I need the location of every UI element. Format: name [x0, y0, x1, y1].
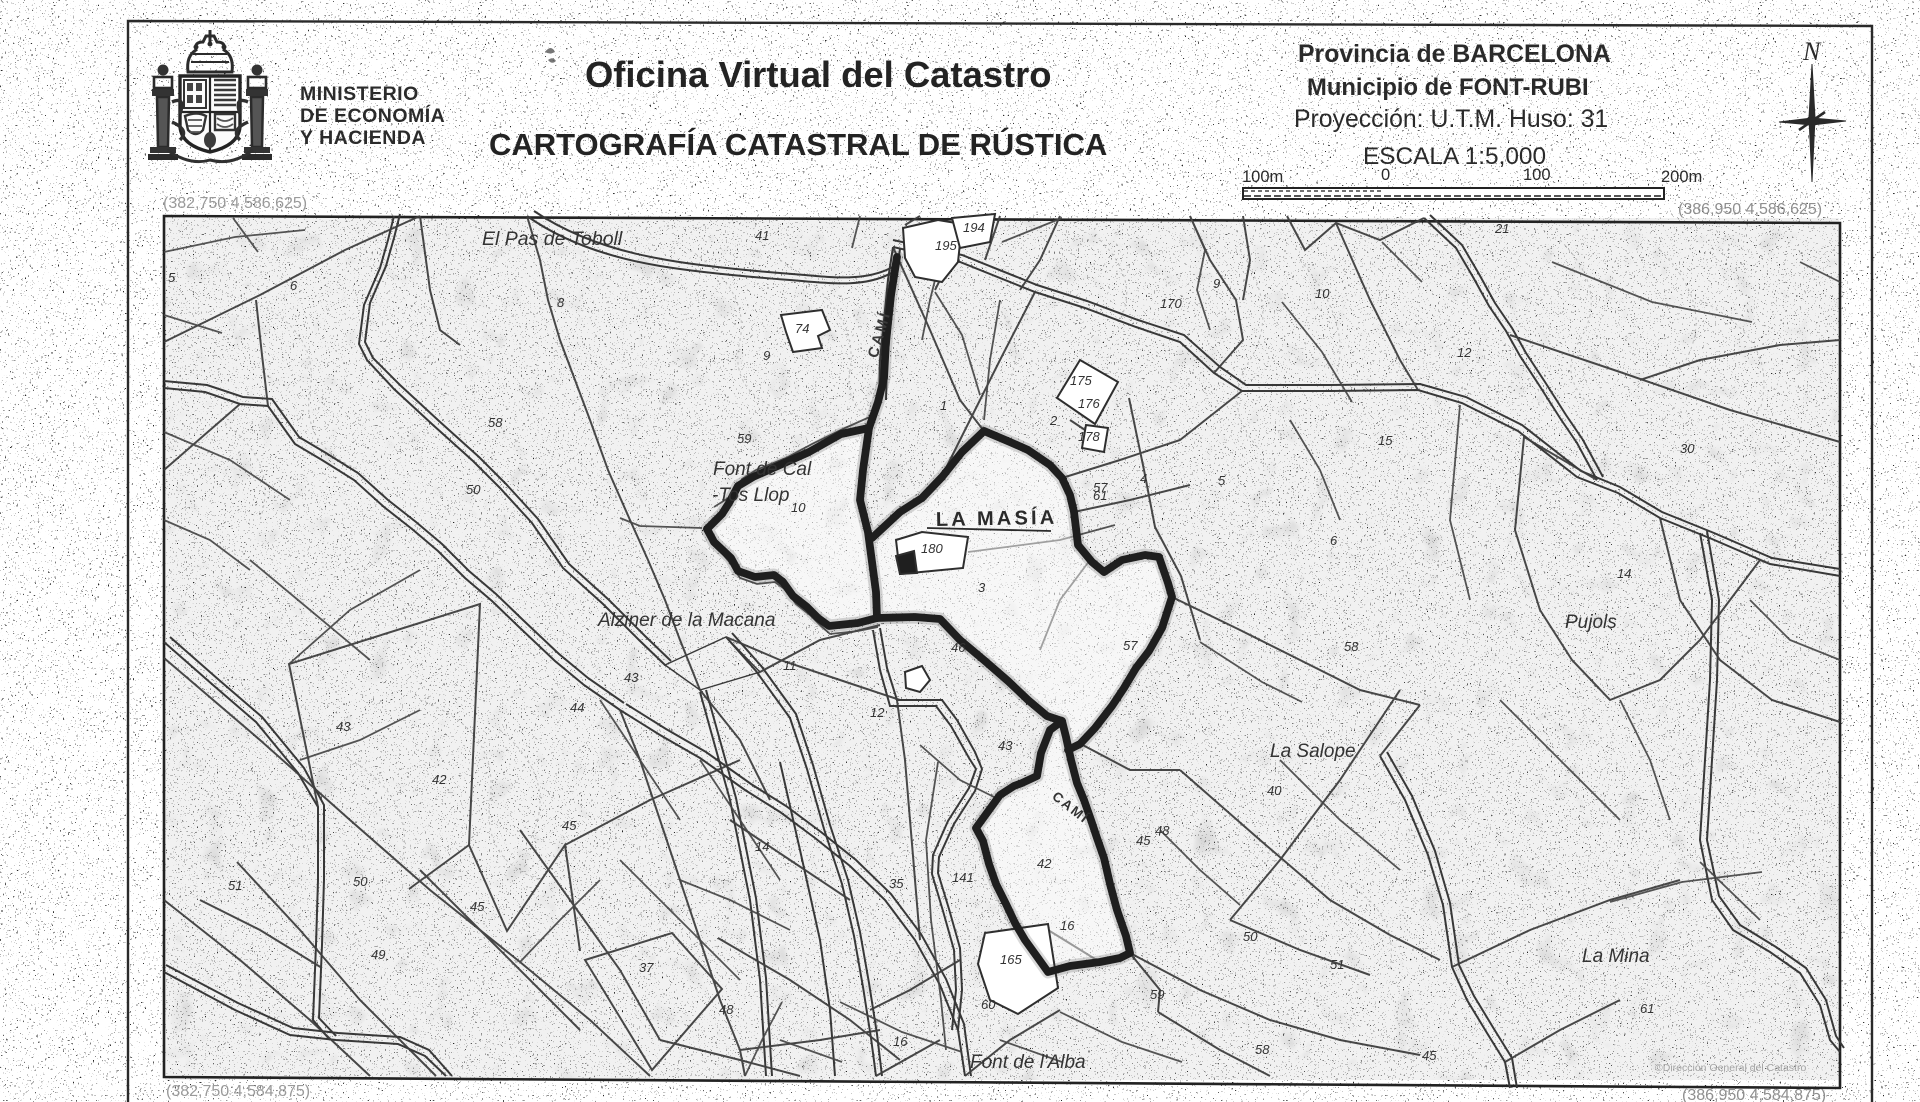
svg-text:5: 5	[1218, 473, 1226, 488]
svg-text:194: 194	[963, 220, 985, 235]
svg-text:21: 21	[1494, 221, 1509, 236]
svg-text:200m: 200m	[1661, 168, 1702, 186]
svg-text:©Dirección General del Catastr: ©Dirección General del Catastro	[1655, 1062, 1806, 1074]
svg-text:141: 141	[952, 870, 974, 885]
svg-text:Font de l'Alba: Font de l'Alba	[970, 1052, 1086, 1073]
svg-text:Municipio de FONT-RUBI: Municipio de FONT-RUBI	[1307, 74, 1589, 101]
svg-text:MINISTERIO: MINISTERIO	[300, 83, 419, 105]
svg-text:58: 58	[1344, 639, 1359, 654]
svg-text:170: 170	[1160, 296, 1182, 311]
svg-text:58: 58	[488, 415, 503, 430]
svg-text:Proyección: U.T.M. Huso: 31: Proyección: U.T.M. Huso: 31	[1294, 106, 1608, 133]
svg-text:4: 4	[1140, 471, 1147, 486]
svg-text:LA MASÍA: LA MASÍA	[936, 506, 1058, 531]
svg-text:N: N	[1802, 37, 1822, 66]
svg-text:11: 11	[783, 658, 797, 673]
svg-text:Font de Cal: Font de Cal	[713, 459, 812, 480]
svg-text:Alziner de la Macana: Alziner de la Macana	[597, 610, 775, 631]
svg-text:9: 9	[763, 348, 770, 363]
svg-text:0: 0	[1381, 166, 1390, 184]
svg-text:50: 50	[466, 482, 481, 497]
svg-text:45: 45	[1422, 1048, 1437, 1063]
svg-text:Provincia de BARCELONA: Provincia de BARCELONA	[1298, 41, 1611, 68]
svg-text:175: 175	[1070, 373, 1092, 388]
svg-text:14: 14	[755, 839, 769, 854]
svg-text:10: 10	[1315, 286, 1330, 301]
svg-text:ESCALA 1:5,000: ESCALA 1:5,000	[1363, 143, 1546, 170]
svg-text:2: 2	[1049, 413, 1058, 428]
svg-text:DE ECONOMÍA: DE ECONOMÍA	[300, 104, 445, 127]
svg-text:180: 180	[921, 541, 943, 556]
svg-text:16: 16	[1060, 918, 1075, 933]
svg-text:57: 57	[1093, 480, 1108, 495]
svg-text:(382,750 4,584,875): (382,750 4,584,875)	[166, 1083, 310, 1100]
svg-text:100: 100	[1523, 166, 1551, 184]
svg-text:74: 74	[795, 321, 809, 336]
svg-text:44: 44	[570, 700, 584, 715]
svg-text:(386,950 4,584,875): (386,950 4,584,875)	[1682, 1087, 1826, 1102]
svg-text:37: 37	[639, 960, 654, 975]
svg-text:15: 15	[1378, 433, 1393, 448]
svg-text:59: 59	[1150, 987, 1164, 1002]
svg-text:12: 12	[870, 705, 885, 720]
svg-text:9: 9	[1213, 276, 1220, 291]
svg-text:Oficina Virtual del Catastro: Oficina Virtual del Catastro	[585, 54, 1051, 95]
svg-text:6: 6	[1330, 533, 1338, 548]
svg-text:Y HACIENDA: Y HACIENDA	[300, 127, 426, 149]
svg-text:45: 45	[562, 818, 577, 833]
svg-text:58: 58	[1255, 1042, 1270, 1057]
svg-text:176: 176	[1078, 396, 1100, 411]
svg-text:40: 40	[1267, 783, 1282, 798]
svg-text:16: 16	[893, 1034, 908, 1049]
svg-text:La Salope: La Salope	[1270, 741, 1356, 762]
svg-text:165: 165	[1000, 952, 1022, 967]
svg-text:CARTOGRAFÍA CATASTRAL DE RÚSTI: CARTOGRAFÍA CATASTRAL DE RÚSTICA	[489, 126, 1107, 162]
svg-text:43: 43	[336, 719, 351, 734]
svg-text:48: 48	[719, 1002, 734, 1017]
svg-text:30: 30	[1680, 441, 1695, 456]
svg-text:3: 3	[978, 580, 986, 595]
svg-text:El Pas de Toboll: El Pas de Toboll	[482, 228, 623, 250]
svg-text:35: 35	[889, 876, 904, 891]
svg-text:12: 12	[1457, 345, 1472, 360]
svg-text:46: 46	[951, 640, 966, 655]
svg-text:51: 51	[228, 878, 242, 893]
svg-text:43: 43	[624, 670, 639, 685]
svg-text:42: 42	[432, 772, 447, 787]
svg-text:51: 51	[1330, 957, 1344, 972]
svg-text:10: 10	[791, 500, 806, 515]
svg-text:57: 57	[1123, 638, 1138, 653]
svg-text:(386,950 4,586,625): (386,950 4,586,625)	[1678, 201, 1822, 218]
svg-text:48: 48	[1155, 823, 1170, 838]
svg-text:La Mina: La Mina	[1582, 946, 1650, 967]
svg-text:14: 14	[1617, 566, 1631, 581]
svg-text:60: 60	[981, 997, 996, 1012]
svg-text:50: 50	[353, 874, 368, 889]
svg-text:8: 8	[557, 295, 565, 310]
svg-text:195: 195	[935, 238, 957, 253]
svg-text:Pujols: Pujols	[1565, 612, 1617, 633]
svg-text:59: 59	[737, 431, 751, 446]
svg-text:43: 43	[998, 738, 1013, 753]
svg-text:41: 41	[755, 228, 769, 243]
svg-text:-Tos Llop: -Tos Llop	[712, 485, 789, 506]
svg-text:178: 178	[1078, 429, 1100, 444]
svg-text:61: 61	[1640, 1001, 1654, 1016]
svg-text:42: 42	[1037, 856, 1052, 871]
svg-text:45: 45	[1136, 833, 1151, 848]
svg-text:(382,750 4,586,625): (382,750 4,586,625)	[163, 195, 307, 212]
svg-text:6: 6	[290, 278, 298, 293]
svg-text:49: 49	[371, 947, 385, 962]
svg-text:50: 50	[1243, 929, 1258, 944]
svg-text:45: 45	[470, 899, 485, 914]
svg-text:5: 5	[168, 270, 176, 285]
svg-text:100m: 100m	[1242, 168, 1283, 186]
svg-text:1: 1	[940, 398, 947, 413]
